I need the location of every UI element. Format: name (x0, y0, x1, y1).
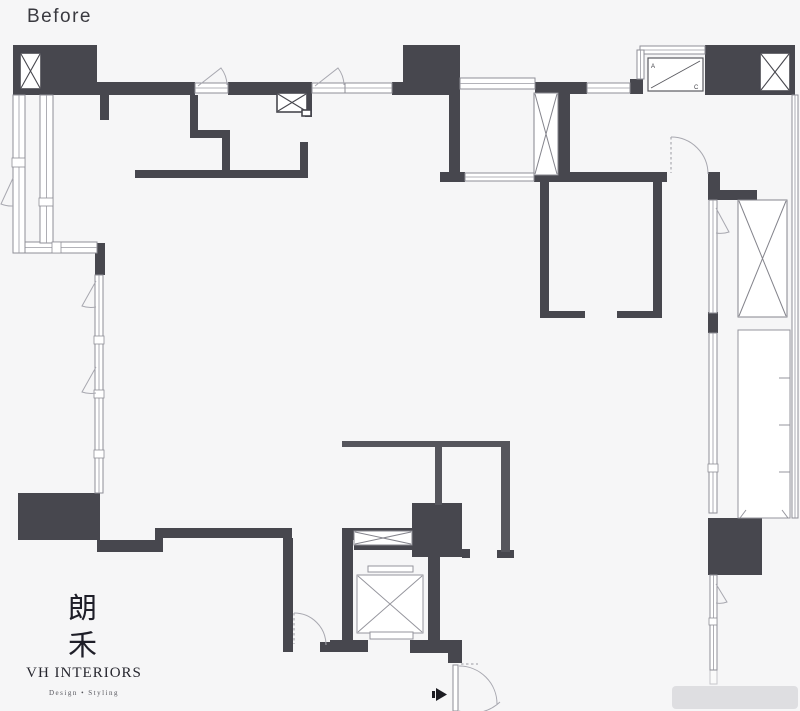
casement-left-outer (1, 178, 13, 206)
window-left-outer (13, 95, 25, 253)
interior-walls-middle (135, 87, 757, 318)
window-right-outer (792, 95, 798, 518)
bedroom-door-arc (671, 137, 708, 174)
casement-right-2 (716, 584, 727, 603)
studio-name: VH INTERIORS (12, 665, 156, 682)
window-ac-alcove-top (640, 46, 705, 54)
window-balcony-right-3 (710, 575, 717, 684)
window-ac-alcove-return (637, 50, 644, 79)
window-break-marks (12, 158, 718, 625)
hatched-column-strip (534, 93, 558, 175)
column-top-left (20, 53, 41, 89)
window-top-3 (345, 83, 392, 93)
hatched-balcony-unit (738, 200, 787, 317)
watermark-blur (672, 686, 798, 709)
window-left-inner (40, 95, 53, 243)
studio-tagline: Design • Styling (12, 689, 156, 697)
logo-cjk-char-2: 禾 (40, 627, 125, 664)
window-top-4 (587, 83, 630, 93)
ac-label-c: C (694, 85, 699, 91)
window-balcony-right-2 (709, 333, 717, 513)
window-corridor (465, 173, 534, 181)
entry-door-arc-1 (459, 666, 497, 704)
casement-left-1 (82, 281, 96, 307)
window-balcony-right-1 (709, 200, 717, 313)
ac-unit: A C (648, 58, 703, 91)
casement-right-1 (716, 208, 729, 233)
window-left-lower (95, 275, 103, 493)
left-room-door-arc (294, 613, 326, 645)
window-top-recessed (460, 78, 535, 89)
floor-plan-page: Before (0, 0, 800, 711)
ac-label-a: A (651, 64, 655, 70)
casement-left-2 (82, 367, 96, 393)
column-top-middle (277, 93, 311, 116)
entry-arrow-icon (432, 688, 447, 701)
entry-door-frame (453, 665, 458, 711)
logo-cjk: 朗 禾 (40, 590, 125, 664)
elevator-car (357, 566, 423, 639)
elevator-door-hatch (354, 531, 412, 545)
column-top-right (760, 53, 790, 91)
logo-cjk-char-1: 朗 (40, 590, 125, 627)
entry-door-arc-2 (459, 702, 500, 711)
balcony-tall-cabinet (738, 330, 790, 518)
